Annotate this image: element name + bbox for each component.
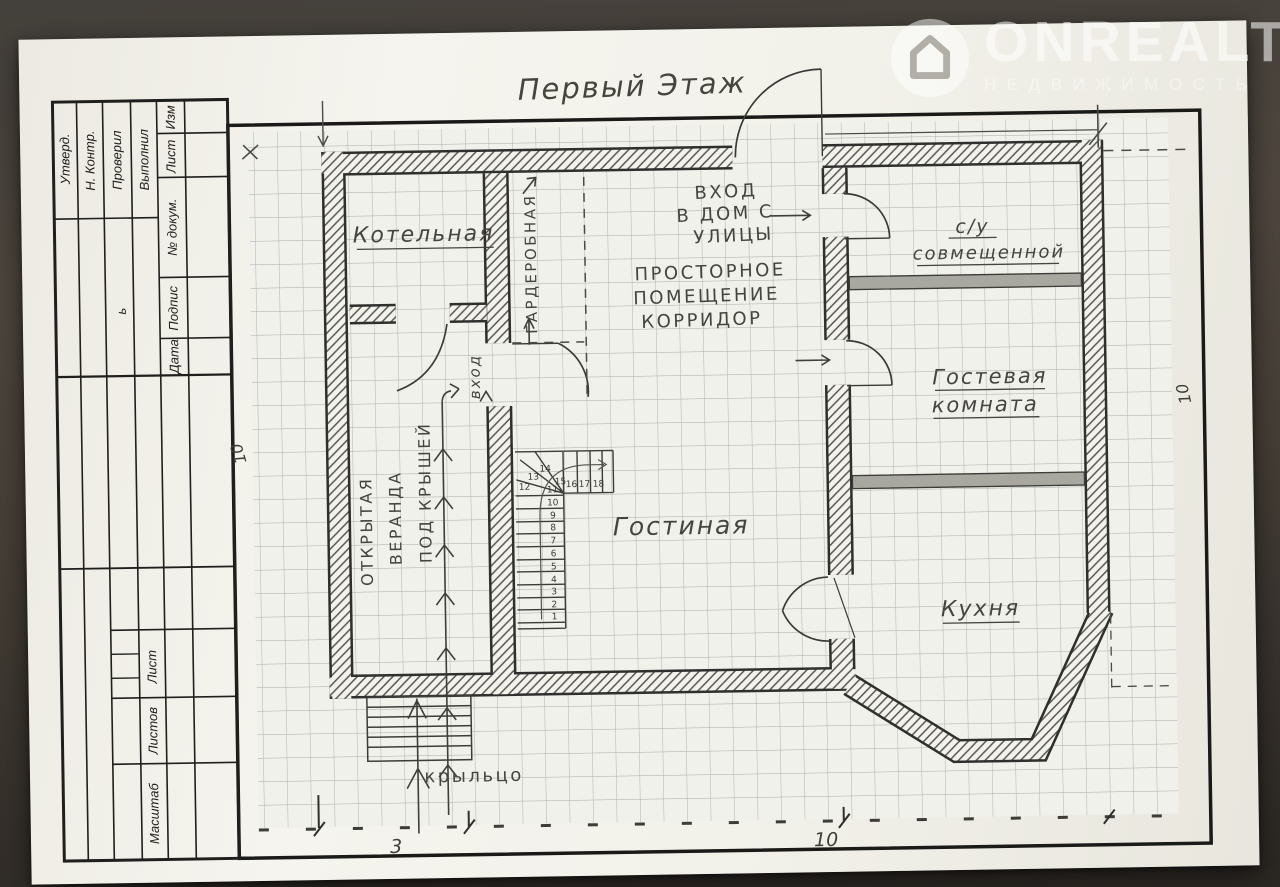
room-label-wardrobe: ГАРДЕРОБНАЯ (521, 193, 541, 334)
label-hall-3: КОРРИДОР (641, 308, 763, 333)
titleblock-n-kontr: Н. Контр. (82, 130, 98, 190)
dimension-bottom-right: 10 (814, 829, 839, 851)
titleblock-list-bottom: Лист (144, 650, 160, 685)
room-label-kitchen: Кухня (941, 596, 1021, 622)
step-number: 4 (551, 575, 557, 585)
sheet-title: Первый Этаж (517, 65, 747, 107)
step-number: 17 (579, 480, 591, 490)
step-number: 16 (566, 480, 578, 490)
photo-background: Изм Лист № докум. Подпис ь Дата Выполнил… (0, 0, 1280, 887)
titleblock-proveril: Проверил (109, 130, 125, 190)
room-label-guest-2: комната (932, 392, 1039, 418)
step-number: 7 (550, 536, 556, 546)
watermark-brand: ONREALT (984, 14, 1280, 71)
room-label-porch: крыльцо (424, 765, 524, 788)
step-number: 2 (551, 600, 557, 610)
titleblock-masshtab: Масштаб (146, 783, 162, 845)
dimension-right-height: 10 (1172, 382, 1195, 406)
paper-sheet: Изм Лист № докум. Подпис ь Дата Выполнил… (18, 20, 1259, 884)
room-label-veranda-2: ВЕРАНДА (385, 470, 405, 565)
door-leaf-guest-room (847, 385, 892, 386)
step-number: 14 (539, 464, 551, 474)
titleblock-utverd: Утверд. (57, 133, 73, 185)
partition-guest-kitchen (852, 472, 1084, 489)
step-number: 1 (552, 612, 558, 622)
watermark-subtitle: НЕДВИЖИМОСТЬ (984, 75, 1280, 95)
titleblock-podpis: Подпис (165, 285, 181, 330)
step-number: 5 (551, 562, 557, 572)
room-label-veranda-1: ОТКРЫТАЯ (356, 476, 377, 586)
step-number: 12 (519, 483, 531, 493)
titleblock-listov: Листов (145, 707, 161, 756)
step-number: 15 (555, 477, 567, 487)
step-number: 8 (550, 523, 556, 533)
room-label-living: Гостиная (613, 510, 750, 541)
onrealt-watermark: ONREALT НЕДВИЖИМОСТЬ (886, 14, 1280, 102)
partition-bathroom (849, 273, 1081, 290)
step-number: 6 (551, 549, 557, 559)
watermark-text: ONREALT НЕДВИЖИМОСТЬ (984, 14, 1280, 95)
titleblock-podpis-tail: ь (114, 307, 129, 314)
floor-plan-drawing: Изм Лист № докум. Подпис ь Дата Выполнил… (18, 20, 1259, 884)
house-logo-icon (886, 14, 974, 102)
door-leaf-bathroom (845, 238, 890, 239)
label-entry: вход (465, 354, 484, 400)
dimension-left-height: 10 (227, 441, 251, 466)
step-number: 10 (547, 498, 559, 508)
step-number: 13 (528, 473, 540, 483)
title-block: Изм Лист № докум. Подпис ь Дата Выполнил… (52, 99, 239, 861)
titleblock-list: Лист (163, 139, 179, 174)
room-label-veranda-3: ПОД КРЫШЕЙ (414, 421, 435, 563)
step-number: 9 (550, 511, 556, 521)
dimension-bottom-left: 3 (390, 836, 402, 858)
room-label-guest-1: Гостевая (932, 364, 1047, 390)
label-entrance-3: УЛИЦЫ (693, 223, 774, 248)
label-entrance-1: ВХОД (694, 180, 758, 204)
step-number: 18 (593, 480, 605, 490)
room-label-bathroom-1: с/у (955, 215, 989, 238)
titleblock-vypolnil: Выполнил (136, 128, 152, 190)
titleblock-doc-no: № докум. (164, 199, 180, 257)
titleblock-izm: Изм (162, 105, 177, 129)
room-label-bathroom-2: совмещенной (913, 241, 1066, 264)
titleblock-data: Дата (166, 339, 182, 376)
step-number: 3 (551, 587, 557, 597)
room-label-boiler: Котельная (353, 221, 495, 248)
